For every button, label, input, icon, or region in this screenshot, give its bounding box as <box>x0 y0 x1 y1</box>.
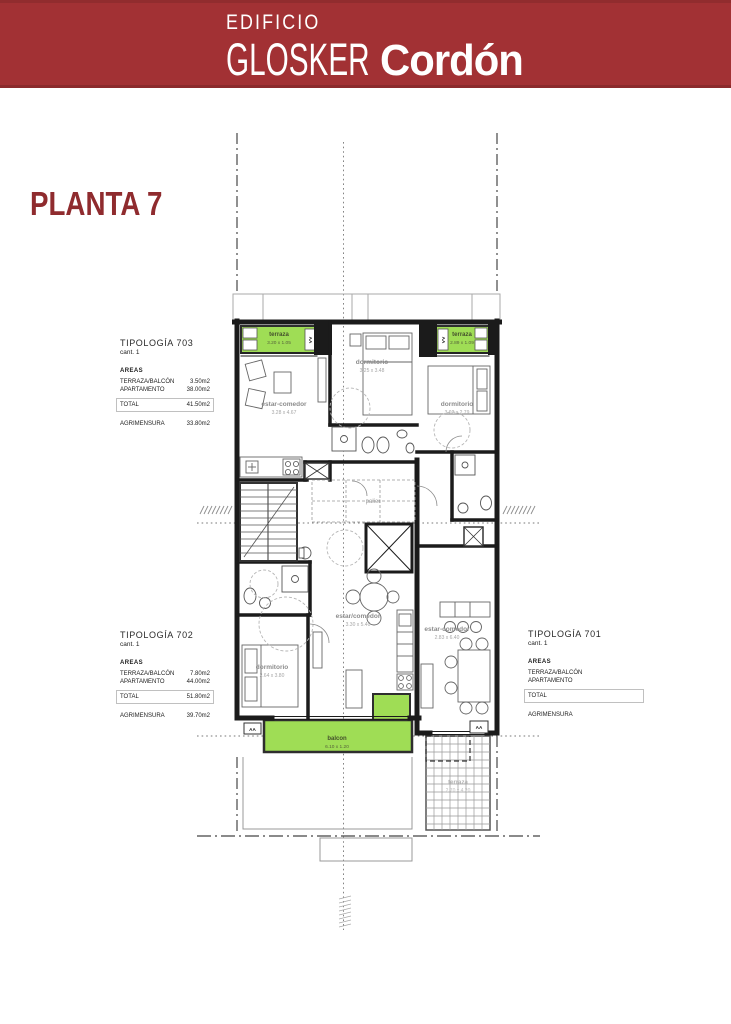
label-terraza-701-top: terraza <box>452 332 472 338</box>
label-estar-701: estar-comedor <box>424 626 470 633</box>
area-row-label: APARTAMENTO <box>120 679 165 685</box>
agrimensura-value: 39.70m2 <box>187 713 210 719</box>
area-row-label: TERRAZA/BALCÓN <box>120 671 174 677</box>
dims-dormitorio-703: 3.25 x 3.48 <box>360 368 385 374</box>
axis-hatch <box>339 896 351 927</box>
area-row: APARTAMENTO 38.00m2 <box>120 387 210 393</box>
area-row-label: APARTAMENTO <box>120 387 165 393</box>
floor-plan: terraza 3.20 x 1.05 terraza 2.89 x 1.09 … <box>0 0 731 1024</box>
typology-title: TIPOLOGÍA 701 <box>528 629 618 639</box>
label-palier: palier <box>366 499 381 505</box>
total-label: TOTAL <box>120 402 139 408</box>
roof-band <box>233 294 500 320</box>
area-row: APARTAMENTO 44.00m2 <box>120 679 210 685</box>
total-label: TOTAL <box>120 694 139 700</box>
typology-702-panel: TIPOLOGÍA 702 cant. 1 AREAS TERRAZA/BALC… <box>120 630 210 719</box>
area-row-label: TERRAZA/BALCÓN <box>528 670 582 676</box>
label-balcon: balcon <box>327 736 347 742</box>
typology-cant: cant. 1 <box>120 641 210 648</box>
dims-dormitorio-702: 2.64 x 3.80 <box>260 673 285 679</box>
dims-terraza-701: 2.70 x 4.20 <box>446 788 471 794</box>
typology-cant: cant. 1 <box>120 349 210 356</box>
typology-703-panel: TIPOLOGÍA 703 cant. 1 AREAS TERRAZA/BALC… <box>120 338 210 427</box>
label-terraza-701: terraza <box>448 780 468 786</box>
aa-marker: AA <box>308 337 313 344</box>
agrimensura-row: AGRIMENSURA 33.80m2 <box>120 421 210 427</box>
neighbor-marker-right <box>503 506 535 514</box>
agrimensura-row: AGRIMENSURA <box>528 712 618 718</box>
total-label: TOTAL <box>528 693 547 699</box>
neighbor-marker-left <box>200 506 232 514</box>
label-estar-702: estar/comedor <box>336 613 381 620</box>
label-estar-703: estar-comedor <box>261 401 307 408</box>
area-row-value: 38.00m2 <box>187 387 210 393</box>
label-terraza-703: terraza <box>269 332 289 338</box>
area-row: TERRAZA/BALCÓN 3.50m2 <box>120 379 210 385</box>
agrimensura-label: AGRIMENSURA <box>120 713 165 719</box>
typology-title: TIPOLOGÍA 703 <box>120 338 210 348</box>
typology-title: TIPOLOGÍA 702 <box>120 630 210 640</box>
total-value: 41.50m2 <box>187 402 210 408</box>
agrimensura-row: AGRIMENSURA 39.70m2 <box>120 713 210 719</box>
total-row: TOTAL <box>524 689 644 703</box>
areas-heading: AREAS <box>528 659 618 665</box>
total-row: TOTAL 41.50m2 <box>116 398 214 412</box>
agrimensura-value: 33.80m2 <box>187 421 210 427</box>
agrimensura-label: AGRIMENSURA <box>528 712 573 718</box>
area-row-label: APARTAMENTO <box>528 678 573 684</box>
aa-marker: AA <box>249 727 256 732</box>
typology-cant: cant. 1 <box>528 640 618 647</box>
duct-shaft <box>305 463 329 479</box>
dims-estar-703: 3.28 x 4.67 <box>272 410 297 416</box>
area-row: APARTAMENTO <box>528 678 618 684</box>
total-value: 51.80m2 <box>187 694 210 700</box>
stairs <box>240 483 297 561</box>
dims-terraza-703: 3.20 x 1.05 <box>267 340 291 346</box>
typology-701-panel: TIPOLOGÍA 701 cant. 1 AREAS TERRAZA/BALC… <box>528 629 618 718</box>
dims-terraza-701-top: 2.89 x 1.09 <box>450 340 474 346</box>
dims-dormitorio-701: 3.02 x 2.79 <box>445 410 470 416</box>
area-row: TERRAZA/BALCÓN 7.80m2 <box>120 671 210 677</box>
area-row-value: 44.00m2 <box>187 679 210 685</box>
total-row: TOTAL 51.80m2 <box>116 690 214 704</box>
areas-heading: AREAS <box>120 660 210 666</box>
elevator <box>366 524 412 572</box>
label-dormitorio-703: dormitorio <box>356 359 389 366</box>
dims-balcon: 6.10 x 1.20 <box>325 744 349 750</box>
flyer-page: EDIFICIO GLOSKER Cordón PLANTA 7 <box>0 0 731 1024</box>
areas-heading: AREAS <box>120 368 210 374</box>
label-dormitorio-701: dormitorio <box>441 401 474 408</box>
dims-estar-701: 2.83 x 6.40 <box>435 635 460 641</box>
dims-estar-702: 3.30 x 5.40 <box>346 622 371 628</box>
aa-marker: AA <box>476 725 483 730</box>
lower-slab-lines <box>243 757 412 861</box>
area-row-value: 3.50m2 <box>190 379 210 385</box>
label-dormitorio-702: dormitorio <box>256 664 289 671</box>
aa-marker: AA <box>441 337 446 344</box>
laundry-shaft <box>464 527 483 546</box>
area-row-value: 7.80m2 <box>190 671 210 677</box>
area-row: TERRAZA/BALCÓN <box>528 670 618 676</box>
area-row-label: TERRAZA/BALCÓN <box>120 379 174 385</box>
agrimensura-label: AGRIMENSURA <box>120 421 165 427</box>
